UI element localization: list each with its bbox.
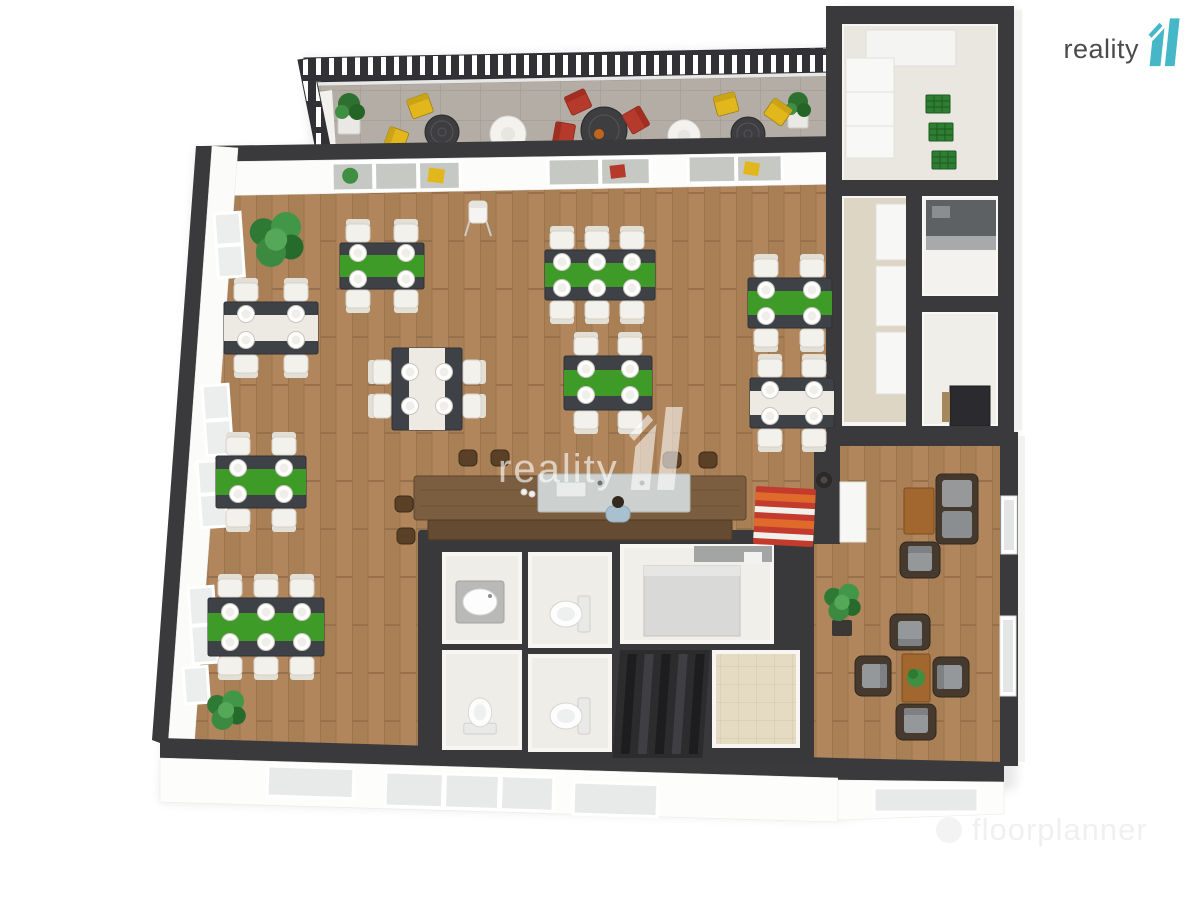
window	[332, 161, 460, 191]
utility-appliance	[950, 386, 990, 426]
sofa	[936, 474, 978, 544]
floorplan-page: reality reality floorplanner	[0, 0, 1200, 900]
restroom-block	[418, 530, 814, 764]
cooler-room	[622, 546, 772, 642]
wc-room	[530, 656, 610, 750]
window	[548, 158, 650, 186]
utility-chair	[942, 392, 950, 422]
bar-stool	[397, 528, 415, 544]
dining-table-6-green	[208, 574, 324, 680]
washroom	[444, 554, 520, 642]
annex-rooms	[826, 6, 1022, 446]
bathroom	[714, 652, 798, 746]
small-sink	[744, 552, 762, 564]
bar-stool	[663, 452, 681, 468]
brand-logo: reality	[1063, 16, 1182, 68]
rug	[753, 486, 816, 547]
hallway-cabinet	[876, 204, 908, 260]
storage-cabinet	[846, 58, 894, 158]
wc-room	[530, 554, 610, 646]
armchair	[890, 614, 930, 650]
window	[183, 666, 209, 704]
annex-facade	[1014, 10, 1022, 430]
wc-room	[444, 652, 520, 748]
facade-window	[385, 772, 554, 811]
cooler-box	[644, 566, 740, 636]
window	[214, 212, 244, 278]
armchair	[896, 704, 936, 740]
hallway-cabinet	[876, 332, 908, 394]
chair-glimpse	[427, 168, 445, 184]
washbasin	[456, 581, 504, 623]
staircase	[612, 650, 710, 758]
bar-stool	[395, 496, 413, 512]
window	[688, 155, 782, 183]
dining-table-6-green	[545, 226, 655, 324]
facade-window	[573, 782, 658, 817]
table-decor	[594, 129, 604, 139]
armchair	[855, 656, 891, 696]
lounge-right-wall	[1000, 432, 1025, 766]
armchair	[900, 542, 940, 578]
brand-name: reality	[1063, 34, 1139, 65]
lounge-window	[1000, 616, 1016, 696]
bar-sink	[556, 482, 586, 497]
chair-glimpse	[610, 164, 626, 179]
facade-window	[874, 788, 978, 812]
lounge-window	[1001, 496, 1017, 554]
kitchen-counter-front	[926, 236, 996, 250]
bar-stool	[491, 450, 509, 466]
facade-window	[267, 766, 354, 799]
bar-stool	[459, 450, 477, 466]
coffee-table	[904, 488, 934, 534]
lounge-cabinet	[840, 482, 866, 542]
glassware	[529, 491, 535, 497]
chair-glimpse	[743, 161, 760, 176]
armchair	[933, 657, 969, 697]
bar-back-shelf	[428, 520, 732, 540]
hallway-cabinet	[876, 266, 908, 326]
glassware	[521, 489, 527, 495]
floorplan-3d	[0, 0, 1200, 900]
kitchen-sink	[932, 206, 950, 218]
bar-stool	[699, 452, 717, 468]
brand-11-icon	[1144, 16, 1182, 68]
